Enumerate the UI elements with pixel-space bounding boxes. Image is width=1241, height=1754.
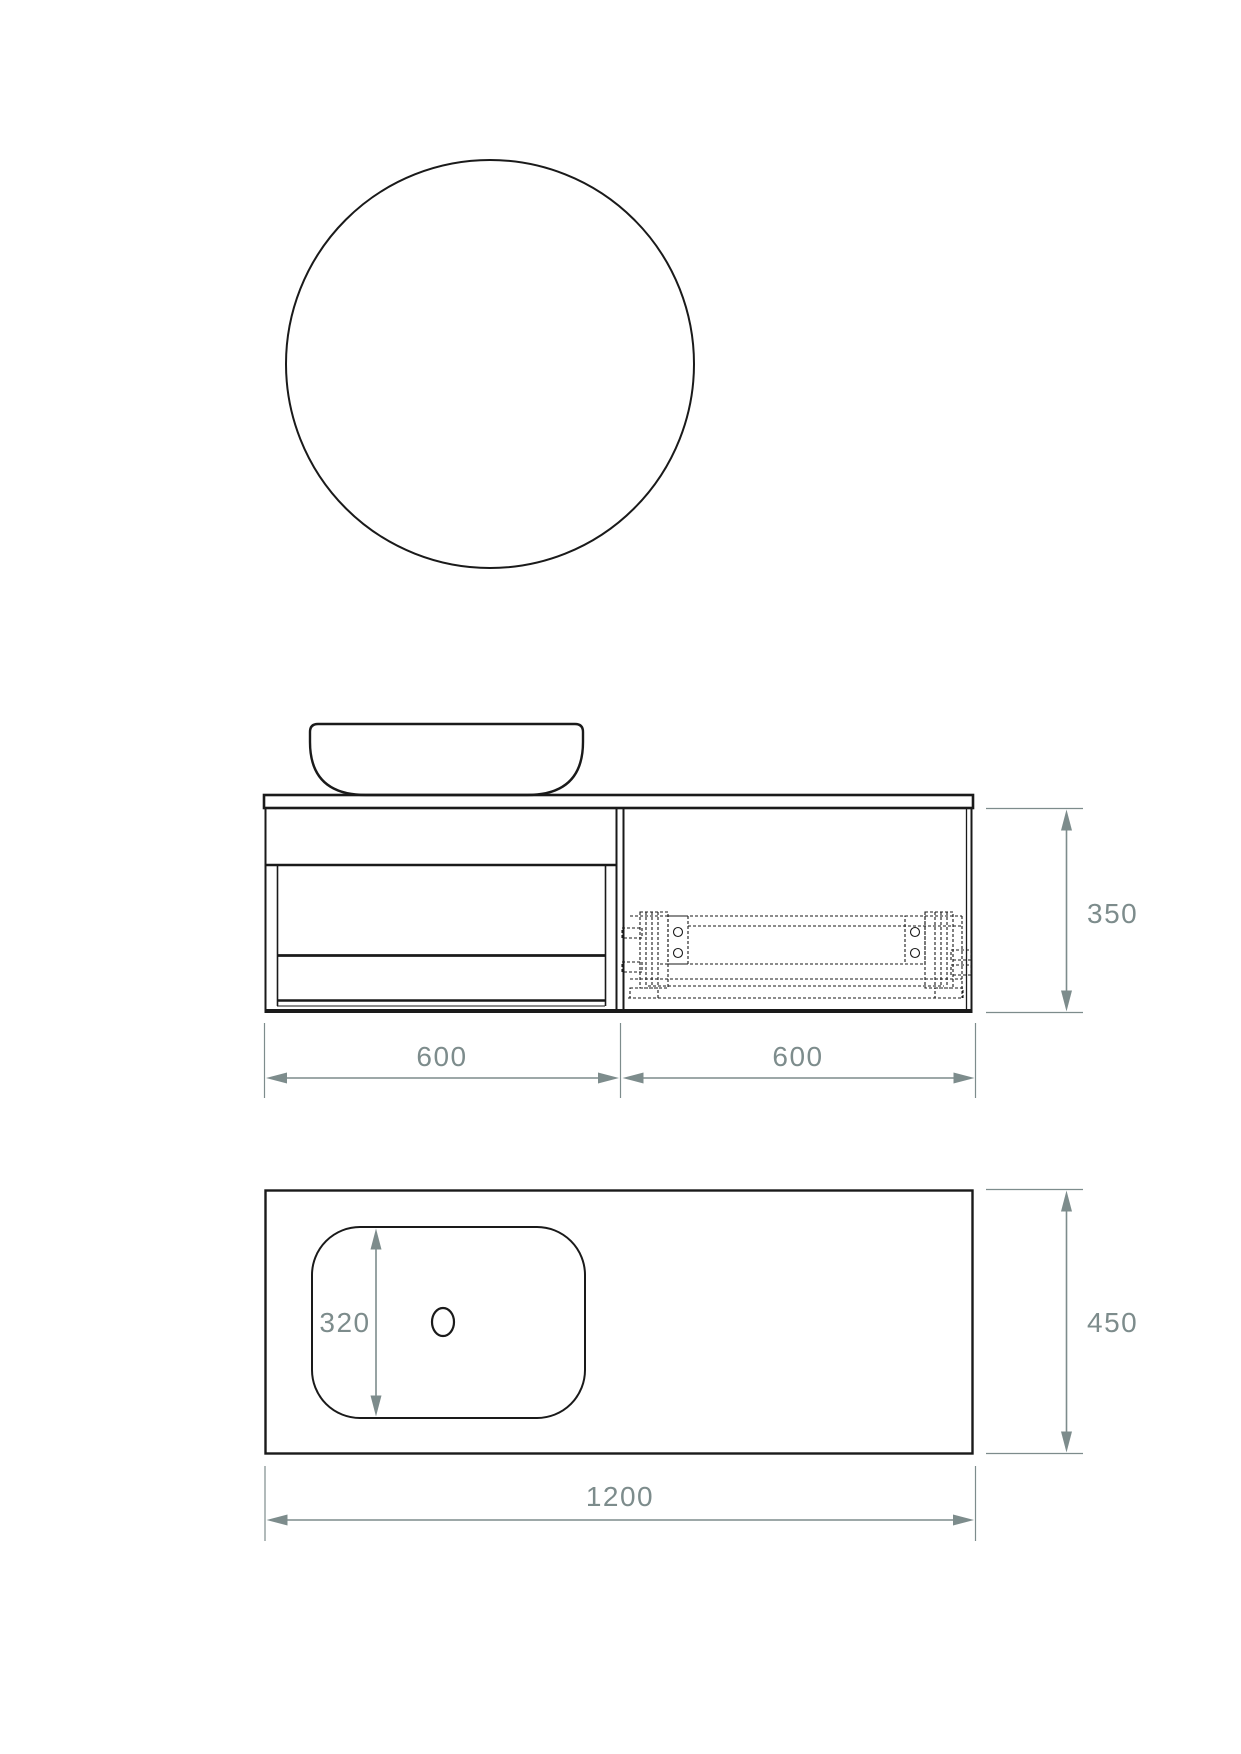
- countertop-plan-outline: [266, 1191, 973, 1454]
- dimension-right-module-width: 600: [623, 1023, 976, 1098]
- vanity-front-elevation: [264, 724, 973, 1012]
- technical-drawing: 600 600 350 320 450: [0, 0, 1241, 1754]
- countertop-plan-view: [266, 1191, 973, 1454]
- dim-label-cabinet-height: 350: [1087, 898, 1138, 929]
- mounting-hole: [911, 928, 920, 937]
- arrowhead-bottom: [371, 1396, 382, 1417]
- arrowhead-bottom: [1061, 991, 1072, 1012]
- dimension-cabinet-height: 350: [986, 809, 1138, 1013]
- mounting-hole: [911, 949, 920, 958]
- arrowhead-right: [598, 1073, 619, 1084]
- runner-left-bracket: [622, 912, 688, 998]
- dim-label-right-module: 600: [772, 1041, 823, 1072]
- runner-right-bracket: [905, 912, 971, 998]
- dim-label-countertop-depth: 450: [1087, 1307, 1138, 1338]
- faucet-hole: [432, 1308, 454, 1336]
- arrowhead-right: [954, 1073, 975, 1084]
- dimension-countertop-width: 1200: [265, 1466, 976, 1541]
- mounting-hole: [674, 928, 683, 937]
- vessel-basin-outline: [310, 724, 583, 795]
- mounting-hole: [674, 949, 683, 958]
- arrowhead-top: [1061, 810, 1072, 831]
- arrowhead-right: [953, 1515, 974, 1526]
- drawing-sheet: 600 600 350 320 450: [0, 0, 1241, 1754]
- dim-label-left-module: 600: [416, 1041, 467, 1072]
- arrowhead-bottom: [1061, 1432, 1072, 1453]
- countertop-front: [264, 795, 973, 808]
- dimension-countertop-depth: 450: [986, 1190, 1138, 1454]
- arrowhead-left: [266, 1073, 287, 1084]
- dim-label-countertop-width: 1200: [586, 1481, 654, 1512]
- arrowhead-top: [1061, 1191, 1072, 1212]
- dim-label-cutout-depth: 320: [319, 1307, 370, 1338]
- arrowhead-left: [623, 1073, 644, 1084]
- cabinet-outline: [266, 808, 972, 1012]
- dimension-basin-cutout-depth: 320: [319, 1229, 381, 1417]
- arrowhead-left: [267, 1515, 288, 1526]
- mirror-front-view: [286, 160, 694, 568]
- mirror-outline: [286, 160, 694, 568]
- arrowhead-top: [371, 1229, 382, 1250]
- dimension-left-module-width: 600: [265, 1023, 621, 1098]
- drawer-runner-hardware: [622, 912, 971, 998]
